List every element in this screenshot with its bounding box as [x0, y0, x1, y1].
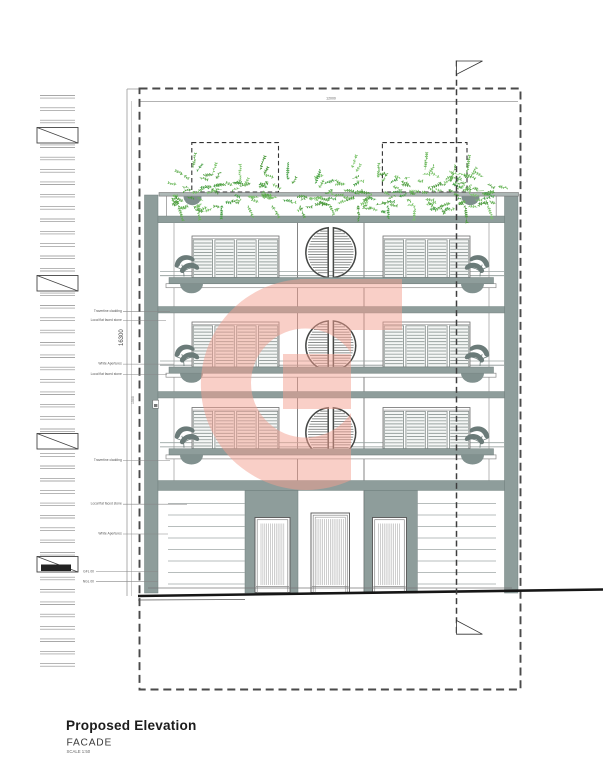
svg-text:NGL 00: NGL 00 [83, 579, 94, 583]
svg-text:12000: 12000 [326, 97, 336, 101]
svg-text:16300: 16300 [119, 329, 125, 346]
svg-text:Travertine cladding: Travertine cladding [94, 458, 122, 462]
svg-text:Proposed Elevation: Proposed Elevation [66, 718, 197, 733]
svg-text:Local flat faced stone: Local flat faced stone [91, 318, 122, 322]
svg-text:FACADE: FACADE [67, 738, 113, 749]
svg-text:1500: 1500 [131, 396, 135, 404]
svg-text:White Apertures: White Apertures [98, 531, 122, 535]
svg-text:White Apertures: White Apertures [98, 362, 122, 366]
svg-text:GFL 00: GFL 00 [83, 570, 94, 574]
svg-text:Local flat faced stone: Local flat faced stone [91, 372, 122, 376]
svg-text:Local flat faced stone: Local flat faced stone [91, 502, 122, 506]
svg-text:SCALE 1:50: SCALE 1:50 [67, 749, 91, 754]
svg-text:Travertine cladding: Travertine cladding [94, 309, 122, 313]
